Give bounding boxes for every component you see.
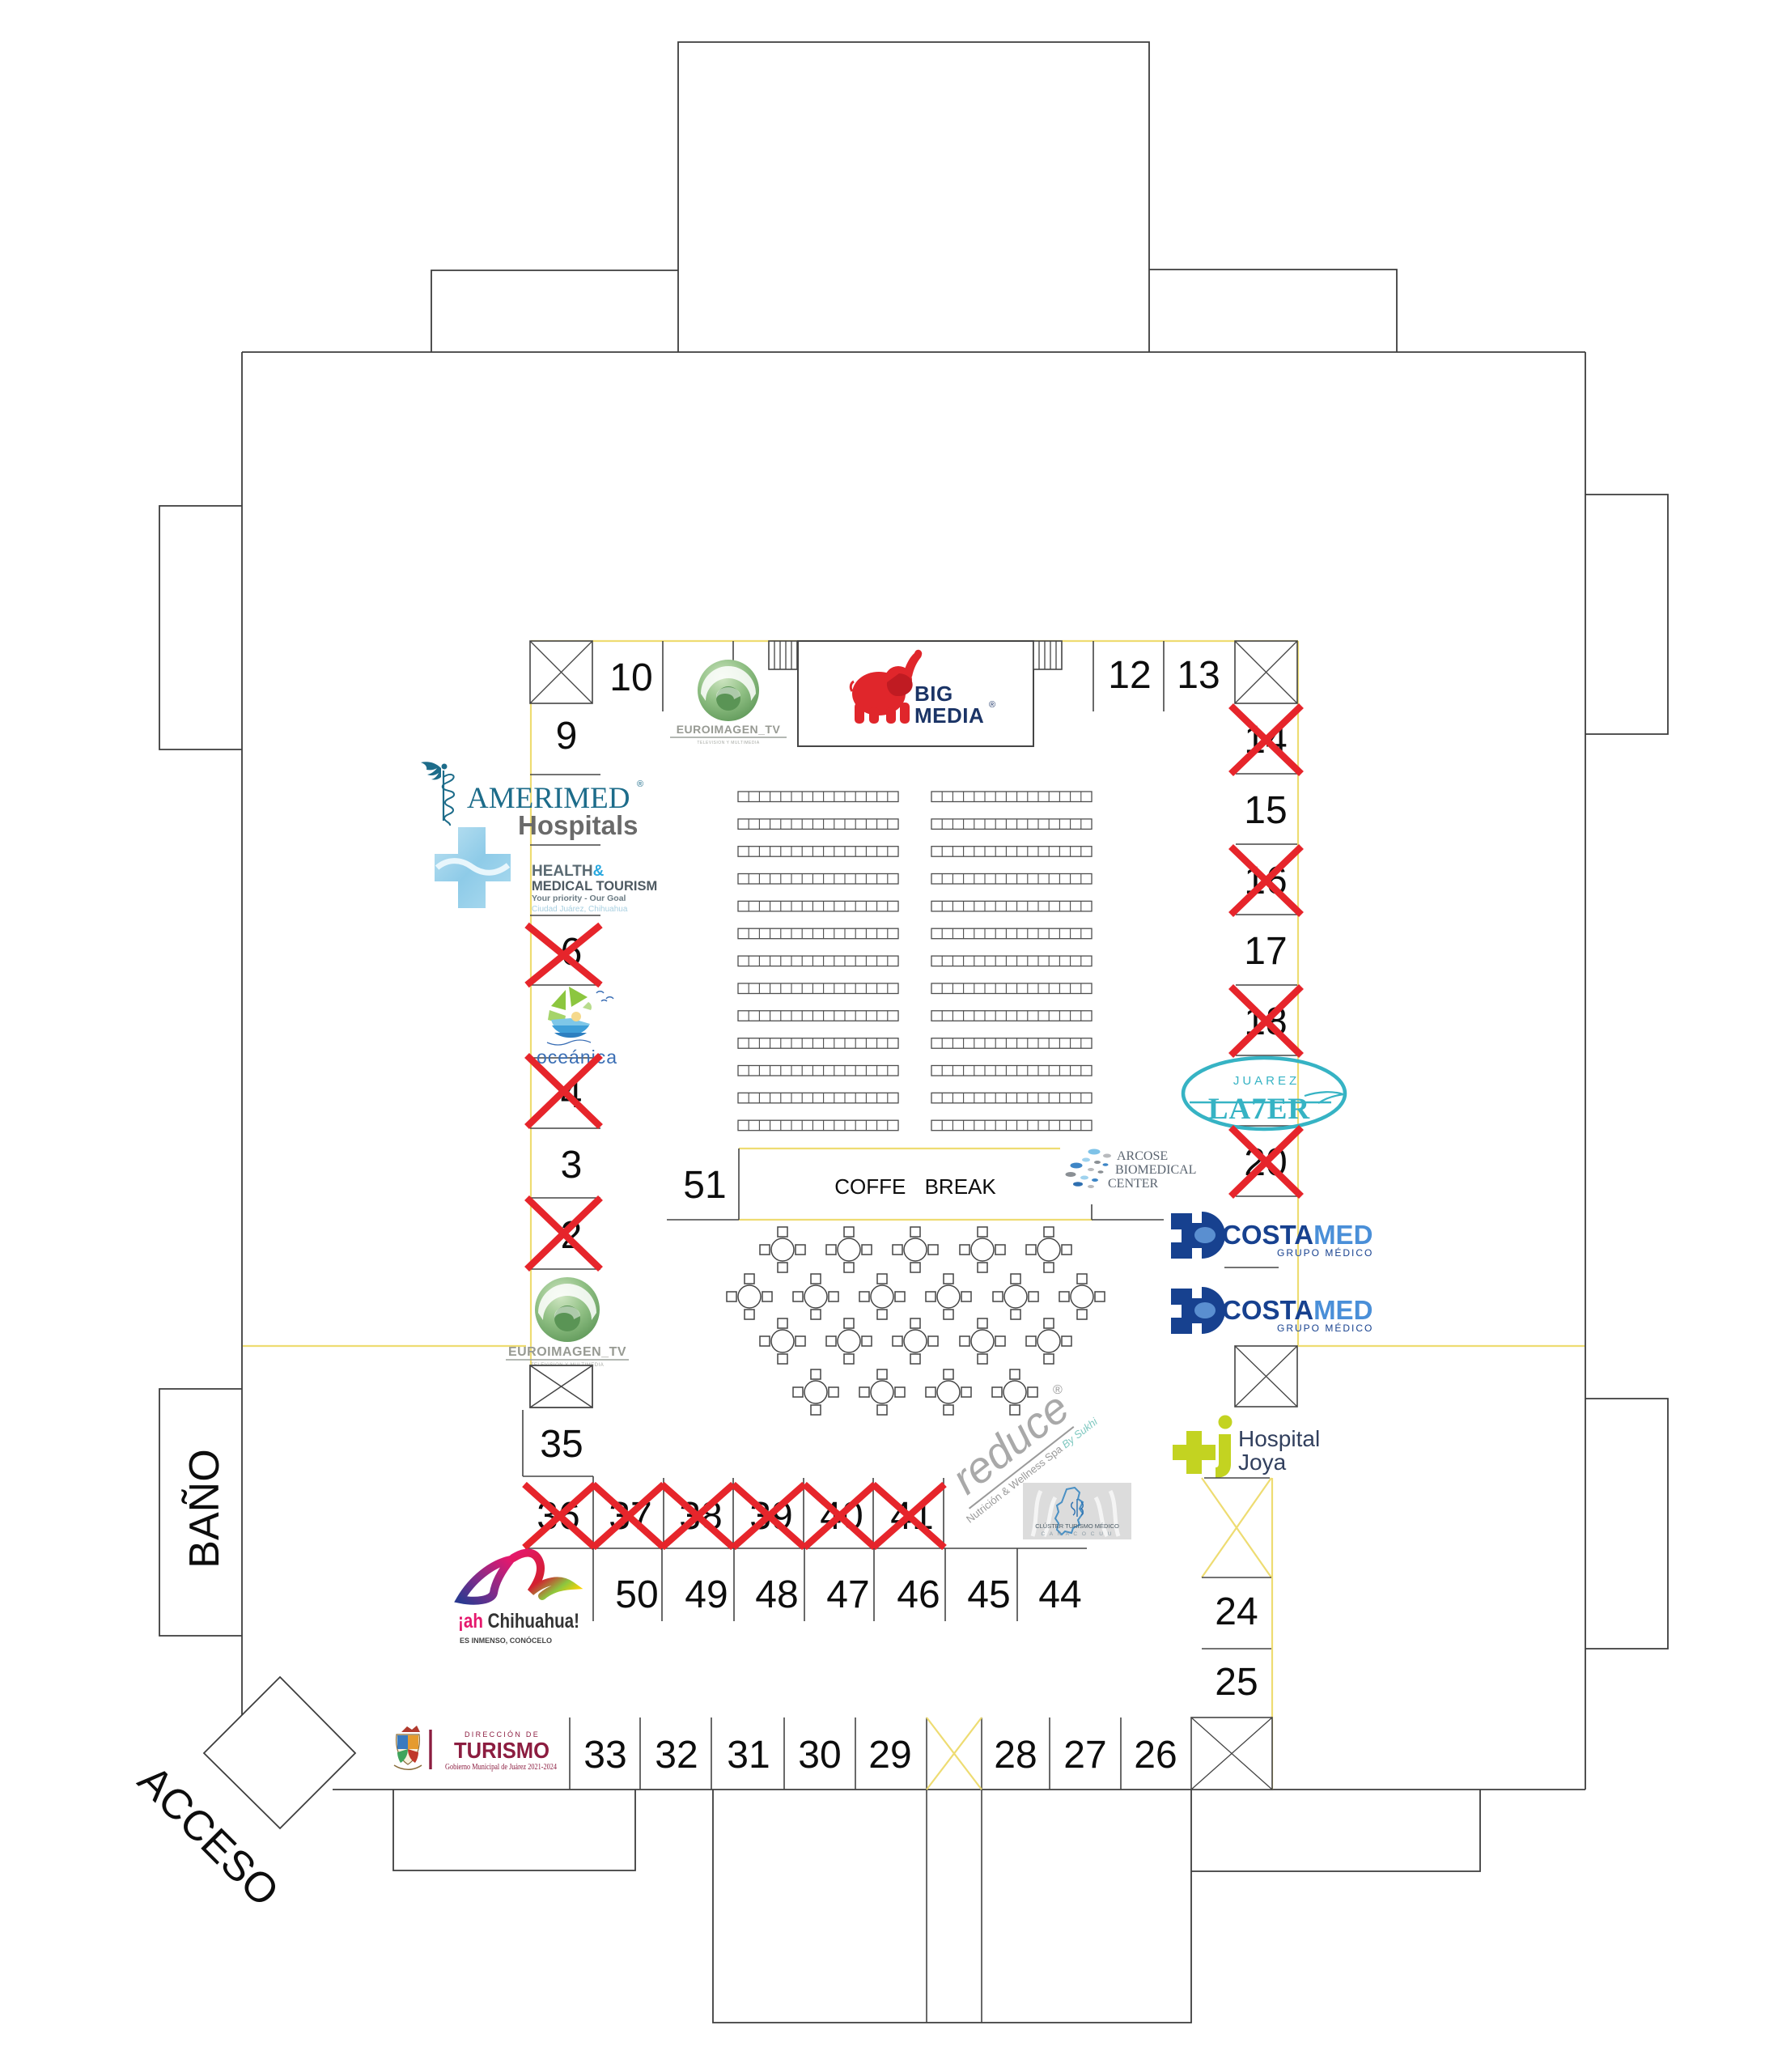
svg-text:28: 28 — [994, 1734, 1037, 1777]
svg-text:26: 26 — [1134, 1734, 1177, 1777]
svg-text:EUROIMAGEN_TV: EUROIMAGEN_TV — [508, 1345, 626, 1359]
svg-text:50: 50 — [615, 1573, 658, 1616]
svg-text:COSTAMED: COSTAMED — [1222, 1220, 1373, 1250]
svg-text:EUROIMAGEN_TV: EUROIMAGEN_TV — [677, 723, 781, 736]
svg-text:GRUPO MÉDICO: GRUPO MÉDICO — [1277, 1246, 1373, 1259]
svg-text:TURISMO: TURISMO — [454, 1738, 549, 1763]
svg-text:27: 27 — [1063, 1734, 1106, 1777]
svg-text:BIOMEDICAL: BIOMEDICAL — [1115, 1163, 1196, 1177]
svg-text:Ciudad Juárez, Chihuahua: Ciudad Juárez, Chihuahua — [532, 905, 628, 914]
svg-text:HEALTH&: HEALTH& — [532, 863, 605, 880]
svg-text:12: 12 — [1108, 654, 1151, 697]
svg-text:ARCOSE: ARCOSE — [1117, 1149, 1168, 1163]
svg-text:C A N A C O C U U: C A N A C O C U U — [1042, 1531, 1114, 1537]
svg-text:44: 44 — [1038, 1573, 1081, 1616]
svg-text:ES INMENSO, CONÓCELO: ES INMENSO, CONÓCELO — [460, 1636, 552, 1645]
svg-text:49: 49 — [685, 1573, 728, 1616]
svg-text:9: 9 — [556, 715, 578, 758]
svg-text:¡ah Chihuahua!: ¡ah Chihuahua! — [458, 1610, 579, 1633]
svg-text:Gobierno Municipal de Juárez 2: Gobierno Municipal de Juárez 2021-2024 — [445, 1763, 557, 1772]
svg-text:COSTAMED: COSTAMED — [1222, 1295, 1373, 1325]
svg-text:15: 15 — [1244, 789, 1287, 832]
svg-text:Hospitals: Hospitals — [518, 810, 639, 840]
svg-text:30: 30 — [798, 1734, 841, 1777]
svg-text:31: 31 — [727, 1734, 770, 1777]
svg-text:CENTER: CENTER — [1108, 1177, 1159, 1191]
svg-text:COFFE BREAK: COFFE BREAK — [834, 1174, 996, 1199]
svg-text:17: 17 — [1244, 930, 1287, 973]
svg-text:MEDIA: MEDIA — [914, 703, 984, 728]
svg-text:29: 29 — [868, 1734, 911, 1777]
svg-text:TELEVISION Y MULTIMEDIA: TELEVISION Y MULTIMEDIA — [697, 741, 760, 745]
svg-text:32: 32 — [655, 1734, 698, 1777]
svg-text:3: 3 — [561, 1144, 583, 1187]
svg-text:25: 25 — [1215, 1661, 1258, 1704]
svg-text:oceánica: oceánica — [537, 1047, 617, 1068]
svg-text:33: 33 — [583, 1734, 626, 1777]
svg-text:GRUPO MÉDICO: GRUPO MÉDICO — [1277, 1322, 1373, 1334]
svg-text:CLÚSTER TURISMO MÉDICO: CLÚSTER TURISMO MÉDICO — [1035, 1522, 1119, 1530]
svg-text:24: 24 — [1215, 1590, 1258, 1633]
svg-text:®: ® — [989, 700, 995, 710]
svg-text:Joya: Joya — [1238, 1450, 1287, 1475]
svg-text:®: ® — [637, 779, 643, 789]
svg-text:BIG: BIG — [914, 681, 953, 706]
svg-text:LA7ER: LA7ER — [1208, 1093, 1311, 1126]
svg-text:BAÑO: BAÑO — [181, 1449, 228, 1568]
svg-text:MEDICAL TOURISM: MEDICAL TOURISM — [532, 879, 657, 894]
svg-text:JUAREZ: JUAREZ — [1233, 1074, 1300, 1088]
svg-text:Hospital: Hospital — [1238, 1426, 1320, 1451]
svg-text:45: 45 — [967, 1573, 1010, 1616]
svg-text:51: 51 — [683, 1164, 726, 1207]
svg-text:10: 10 — [609, 656, 652, 699]
svg-text:47: 47 — [826, 1573, 869, 1616]
svg-text:13: 13 — [1177, 654, 1220, 697]
svg-text:Your priority - Our Goal: Your priority - Our Goal — [532, 894, 626, 903]
svg-text:®: ® — [1053, 1383, 1063, 1397]
svg-text:46: 46 — [897, 1573, 940, 1616]
svg-text:35: 35 — [540, 1423, 583, 1466]
svg-text:48: 48 — [755, 1573, 798, 1616]
